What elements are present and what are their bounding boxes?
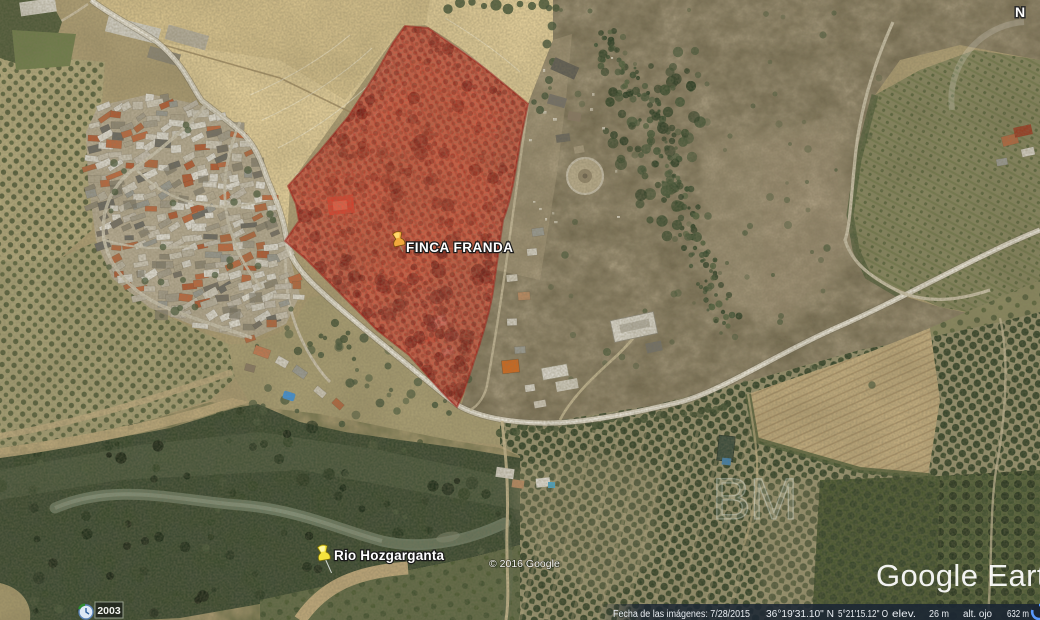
svg-text:26 m: 26 m	[929, 609, 949, 620]
svg-text:FINCA FRANDA: FINCA FRANDA	[406, 240, 514, 255]
svg-text:Rio Hozgarganta: Rio Hozgarganta	[334, 548, 445, 563]
svg-text:N: N	[1015, 4, 1025, 20]
svg-text:Fecha de las imágenes: 7/28/20: Fecha de las imágenes: 7/28/2015	[613, 609, 750, 620]
svg-text:alt. ojo: alt. ojo	[963, 609, 992, 620]
svg-text:© 2016 Google: © 2016 Google	[489, 558, 560, 570]
svg-text:2003: 2003	[97, 605, 121, 617]
svg-text:BM: BM	[712, 467, 797, 532]
svg-text:36°19'31.10" N: 36°19'31.10" N	[766, 609, 834, 620]
svg-text:5°21'15.12" O: 5°21'15.12" O	[838, 609, 888, 620]
svg-text:Google Earth: Google Earth	[876, 558, 1040, 593]
svg-text:632 m: 632 m	[1007, 609, 1029, 620]
svg-text:elev.: elev.	[892, 609, 916, 620]
